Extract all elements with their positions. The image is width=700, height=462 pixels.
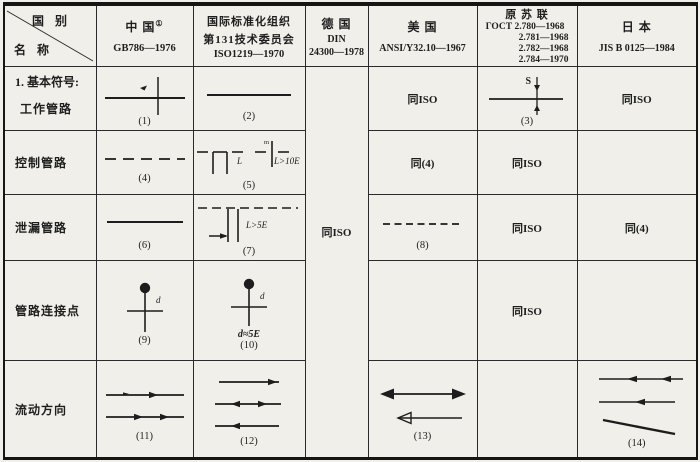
ussr-same-as-iso: 同ISO [478,220,577,236]
diameter-label: d [156,295,161,305]
japan-title: 日 本 [622,18,652,35]
ussr-standards: ГОСТ 2.780—1968 2.781—1968 2.782—1968 2.… [486,22,569,66]
dashed-dimension-symbol: L>5E [196,200,302,246]
symbol-number: (4) [138,173,150,184]
corner-diagonal: 国 别 名 称 [5,7,96,65]
header-row: 国 别 名 称 中 国① GB786—1976 国际标准化组织 第131技术委员… [4,4,697,67]
japan-same-as-4: 同(4) [578,220,697,236]
cell-leakage-us: (8) [368,195,477,261]
japan-same-as-iso: 同ISO [578,91,697,107]
row5-name-cell: 流动方向 [4,361,96,459]
row4-label: 管路连接点 [15,302,96,319]
header-japan: 日 本 JIS B 0125—1984 [577,4,697,67]
symbol-number: (12) [240,436,258,447]
ussr-standard-3: 2.782—1968 [486,44,569,55]
symbol-number: (6) [138,240,150,251]
row1-label: 工作管路 [15,100,96,117]
cell-working-iso: (2) [193,67,305,131]
cell-control-us: 同(4) [368,131,477,195]
iso-title-line1: 国际标准化组织 [207,13,291,29]
connection-dot-symbol: d [107,277,183,335]
cell-flow-japan: (14) [577,361,697,459]
flow-arrows-symbol [209,374,289,436]
corner-header-cell: 国 别 名 称 [4,4,96,67]
iso-title-line2: 第131技术委员会 [203,31,295,47]
double-arrow-symbol [372,379,474,431]
iso-standard: ISO1219—1970 [214,49,285,60]
symbol-number: (8) [416,240,428,251]
corner-name-label: 名 称 [14,41,53,58]
cell-connection-ussr: 同ISO [477,261,577,361]
us-same-as-4: 同(4) [369,155,477,171]
cell-working-ussr: S (3) [477,67,577,131]
symbol-number: (5) [243,180,255,191]
cell-din-merged: 同ISO [305,67,368,459]
cell-flow-china: (11) [96,361,193,459]
cell-control-china: (4) [96,131,193,195]
header-din: 德 国 DIN 24300—1978 [305,4,368,67]
symbol-number: (7) [243,246,255,257]
cell-connection-china: d (9) [96,261,193,361]
cell-flow-us: (13) [368,361,477,459]
din-title: 德 国 [321,15,351,32]
symbol-number: (13) [414,431,432,442]
dot-size-rule: d≈5E [238,329,260,340]
us-title: 美 国 [407,18,437,35]
symbol-number: (11) [136,431,153,442]
cell-flow-iso: (12) [193,361,305,459]
row5-label: 流动方向 [15,401,96,418]
row4-name-cell: 管路连接点 [4,261,96,361]
symbols-comparison-table: 国 别 名 称 中 国① GB786—1976 国际标准化组织 第131技术委员… [3,2,698,460]
cell-working-us: 同ISO [368,67,477,131]
symbol-number: (10) [240,340,258,351]
header-china: 中 国① GB786—1976 [96,4,193,67]
row2-label: 控制管路 [15,154,96,171]
connection-dot-symbol: d [211,273,287,329]
symbol-number: (9) [138,335,150,346]
symbol-number: (3) [521,116,533,127]
flow-arrows-symbol [101,379,189,431]
cell-flow-ussr [477,361,577,459]
header-us: 美 国 ANSI/Y32.10—1967 [368,4,477,67]
working-line-symbol [201,77,297,111]
header-ussr: 原 苏 联 ГОСТ 2.780—1968 2.781—1968 2.782—1… [477,4,577,67]
dash-length-label: L [236,156,242,166]
flow-arrows-symbol [583,372,691,438]
corner-country-label: 国 别 [32,12,71,29]
cell-control-japan [577,131,697,195]
us-same-as-iso: 同ISO [369,91,477,107]
din-same-as-iso: 同ISO [322,224,352,240]
gap-label: m [264,139,269,146]
symbol-number: (1) [138,116,150,127]
symbol-number: (2) [243,111,255,122]
solid-line-symbol [101,206,189,240]
header-iso: 国际标准化组织 第131技术委员会 ISO1219—1970 [193,4,305,67]
cell-leakage-japan: 同(4) [577,195,697,261]
din-org: DIN [327,34,345,45]
cell-working-china: (1) [96,67,193,131]
japan-standard: JIS B 0125—1984 [599,43,675,54]
dashed-line-symbol [101,143,189,173]
ussr-standard-4: 2.784—1970 [486,55,569,66]
diameter-label: d [260,291,265,301]
crossing-lines-symbol: S [485,72,569,116]
scanned-standards-table-page: 国 别 名 称 中 国① GB786—1976 国际标准化组织 第131技术委员… [0,0,700,462]
row2-name-cell: 控制管路 [4,131,96,195]
section-title: 1. 基本符号: [15,73,96,90]
cell-connection-iso: d d≈5E (10) [193,261,305,361]
row3-label: 泄漏管路 [15,219,96,236]
row1-name-cell: 1. 基本符号: 工作管路 [4,67,96,131]
row3-name-cell: 泄漏管路 [4,195,96,261]
ussr-title: 原 苏 联 [505,6,549,22]
dash-rule-label: L>10E [273,156,300,166]
china-title: 中 国① [125,18,163,35]
us-standard: ANSI/Y32.10—1967 [379,43,465,54]
din-standard: 24300—1978 [309,47,364,58]
china-standard: GB786—1976 [113,43,175,54]
ussr-standard-2: 2.781—1968 [486,33,569,44]
short-dashed-line-symbol [377,206,469,240]
ussr-same-as-iso: 同ISO [478,155,577,171]
cell-leakage-ussr: 同ISO [477,195,577,261]
working-line-cross-symbol [101,72,189,116]
cell-leakage-china: (6) [96,195,193,261]
china-footnote-mark: ① [155,19,163,28]
ussr-same-as-iso: 同ISO [478,303,577,319]
dash-dimension-symbol: L m L>10E [195,136,303,180]
cell-connection-us [368,261,477,361]
cell-leakage-iso: L>5E (7) [193,195,305,261]
cell-control-ussr: 同ISO [477,131,577,195]
row-working-line: 1. 基本符号: 工作管路 (1) (2) 同ISO [4,67,697,131]
cell-connection-japan [577,261,697,361]
symbol-number: (14) [628,438,646,449]
ussr-standard-1: ГОСТ 2.780—1968 [486,22,569,33]
cell-working-japan: 同ISO [577,67,697,131]
cell-control-iso: L m L>10E (5) [193,131,305,195]
dash-rule-label: L>5E [245,220,268,230]
spacing-label: S [525,76,531,87]
